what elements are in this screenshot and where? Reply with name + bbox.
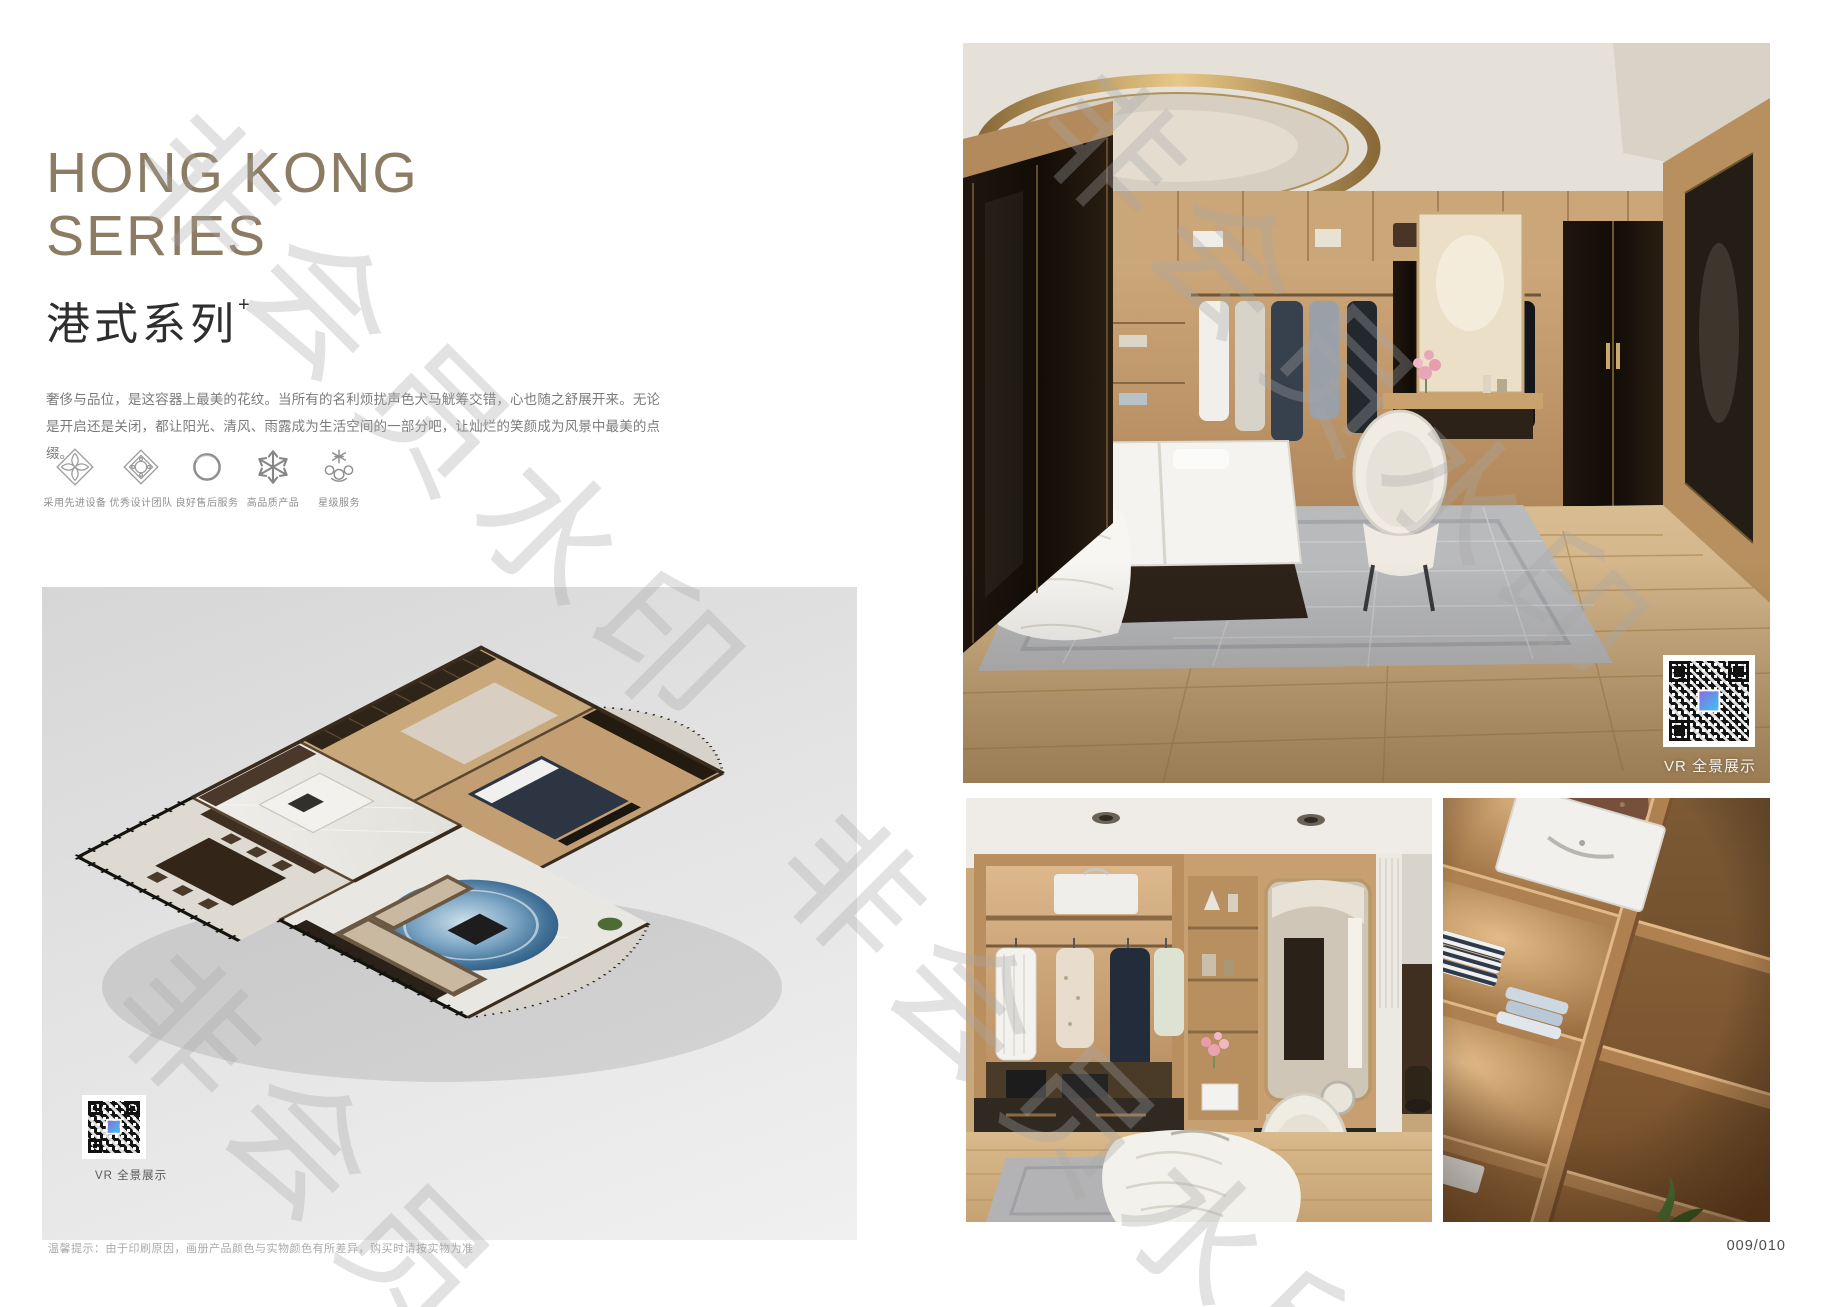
snowflake-icon [252,446,294,488]
qr-finder-icon [1669,720,1690,741]
feature-advanced-equipment: 采用先进设备 [42,446,108,509]
dressing-render [966,798,1432,1222]
series-title-line1: HONG KONG [46,142,419,205]
series-title-plus: + [238,294,254,316]
floorplan-render [42,587,857,1240]
feature-star-service: 星级服务 [306,446,372,509]
ornament-flower-icon [54,446,96,488]
qr-finder-icon [88,1101,102,1115]
series-title-en: HONG KONG SERIES [46,142,419,268]
feature-label: 高品质产品 [247,494,300,509]
floorplan-vr-label: VR 全景展示 [95,1167,167,1183]
shelf-render [1443,798,1770,1222]
qr-finder-icon [1669,661,1690,682]
photo-dressing-area [966,798,1432,1222]
ring-icon [186,446,228,488]
ornament-diamond-icon [120,446,162,488]
vr-cube-logo-icon [106,1119,122,1135]
footer-note: 温馨提示：由于印刷原因，画册产品颜色与实物颜色有所差异，购买时请按实物为准 [48,1240,474,1256]
floorplan-panel: VR 全景展示 [42,587,857,1240]
hero-qr-pattern [1669,661,1749,741]
qr-finder-icon [88,1139,102,1153]
floorplan-qr-code [82,1095,146,1159]
hero-vr-label: VR 全景展示 [1664,755,1756,776]
vr-cube-logo-icon [1697,689,1720,712]
floorplan-qr-pattern [88,1101,140,1153]
hero-qr-code [1663,655,1755,747]
qr-finder-icon [1728,661,1749,682]
feature-label: 良好售后服务 [176,494,239,509]
photo-shelf-closeup [1443,798,1770,1222]
qr-finder-icon [126,1101,140,1115]
series-title-cn-text: 港式系列 [46,300,238,349]
page-number: 009/010 [1727,1238,1786,1254]
vanity-mirror [1266,880,1370,1100]
series-title-line2: SERIES [46,205,419,268]
hero-render [963,43,1770,783]
series-title-cn: 港式系列+ [46,288,254,352]
dressing-right-wall [1376,854,1432,1160]
feature-list: 采用先进设备 优秀设计团队 良好售后服务 [42,446,372,509]
dressing-wardrobe [974,854,1184,1132]
catalog-page: HONG KONG SERIES 港式系列+ 奢侈与品位，是这容器上最美的花纹。… [0,0,1836,1307]
star-service-icon [318,446,360,488]
feature-design-team: 优秀设计团队 [108,446,174,509]
feature-label: 采用先进设备 [44,494,107,509]
hero-vignette [963,43,1770,783]
shelf-vignette [1443,798,1770,1222]
feature-quality-product: 高品质产品 [240,446,306,509]
feature-label: 优秀设计团队 [110,494,173,509]
feature-label: 星级服务 [318,494,360,509]
feature-after-sales: 良好售后服务 [174,446,240,509]
hero-photo-walkin-closet: VR 全景展示 [963,43,1770,783]
